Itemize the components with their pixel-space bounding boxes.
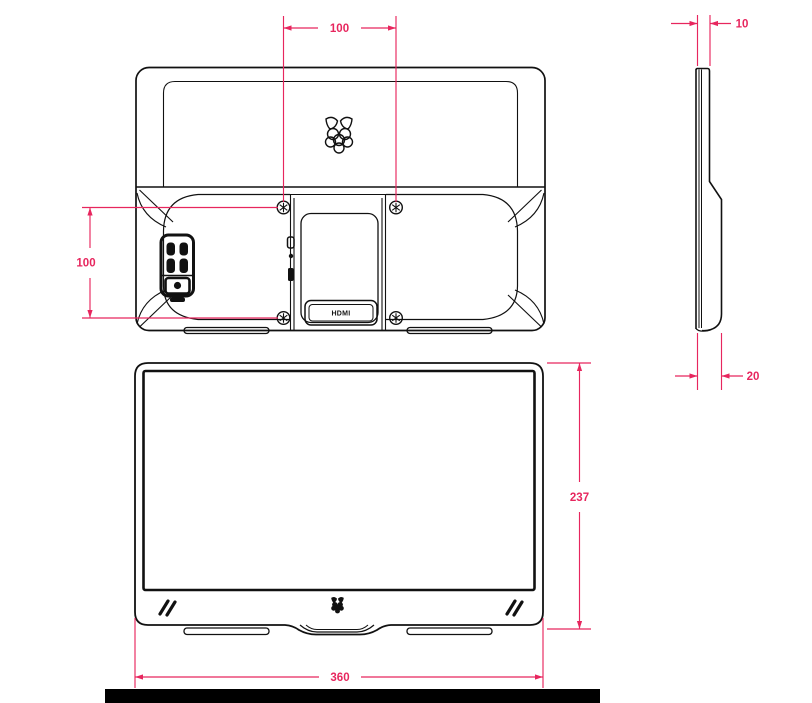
arrowhead-icon [577, 621, 582, 629]
technical-drawing-page: HDMI [0, 0, 812, 703]
rocker-button-icon [180, 259, 189, 274]
arrowhead-icon [577, 363, 582, 371]
rocker-button-icon [180, 243, 189, 256]
rear-stand-plate [301, 214, 378, 323]
dimension-label: 237 [570, 492, 589, 504]
front-body-outline [135, 363, 543, 635]
arrowhead-icon [722, 373, 730, 378]
dimension-label: 10 [736, 19, 749, 31]
rear-right-panel [386, 195, 518, 320]
footer-bar [105, 689, 600, 703]
vesa-screw-icon [277, 312, 290, 325]
vesa-screws [277, 201, 402, 324]
status-led [289, 254, 293, 258]
arrowhead-icon [87, 208, 92, 216]
front-screen [144, 371, 535, 590]
arrowhead-icon [690, 21, 698, 26]
vesa-screw-icon [390, 201, 403, 214]
arrowhead-icon [87, 310, 92, 318]
arrowhead-icon [690, 373, 698, 378]
vesa-screw-icon [277, 201, 290, 214]
rear-control-cluster [161, 235, 194, 302]
dimension-bottom-thickness: 20 [675, 333, 759, 390]
dimension-front-height: 237 [547, 363, 591, 629]
dimension-label: 100 [330, 23, 349, 35]
rocker-button-icon [167, 243, 176, 256]
hdmi-port: HDMI [305, 301, 377, 326]
raspberry-pi-logo-outline-icon [326, 117, 353, 153]
technical-drawing: HDMI [0, 0, 812, 703]
raspberry-pi-logo-icon [331, 597, 344, 613]
front-foot-left [184, 628, 269, 635]
double-slash-icon [507, 601, 522, 615]
arrowhead-icon [535, 674, 543, 679]
rear-corner-chamfers [137, 190, 544, 327]
double-slash-icon [160, 601, 175, 615]
front-chin-lip-inner [306, 625, 368, 630]
arrowhead-icon [710, 21, 718, 26]
dimension-label: 100 [76, 258, 95, 270]
arrowhead-icon [284, 25, 292, 30]
connector-port [288, 268, 294, 281]
arrowhead-icon [135, 674, 143, 679]
side-profile-outline [696, 69, 722, 331]
dimension-vesa-horizontal: 100 [284, 16, 397, 202]
vesa-screw-icon [390, 312, 403, 325]
rear-body-outline [136, 68, 545, 331]
rocker-button-icon [167, 259, 176, 274]
power-button-icon [174, 282, 181, 289]
hdmi-port-label: HDMI [331, 311, 350, 318]
dimension-label: 20 [747, 371, 760, 383]
side-view [696, 69, 722, 332]
rear-view: HDMI [136, 68, 545, 334]
front-view [135, 363, 543, 635]
dimension-top-thickness: 10 [671, 15, 748, 66]
dimension-label: 360 [330, 672, 349, 684]
front-foot-right [407, 628, 492, 635]
cluster-tab [170, 298, 185, 303]
arrowhead-icon [388, 25, 396, 30]
